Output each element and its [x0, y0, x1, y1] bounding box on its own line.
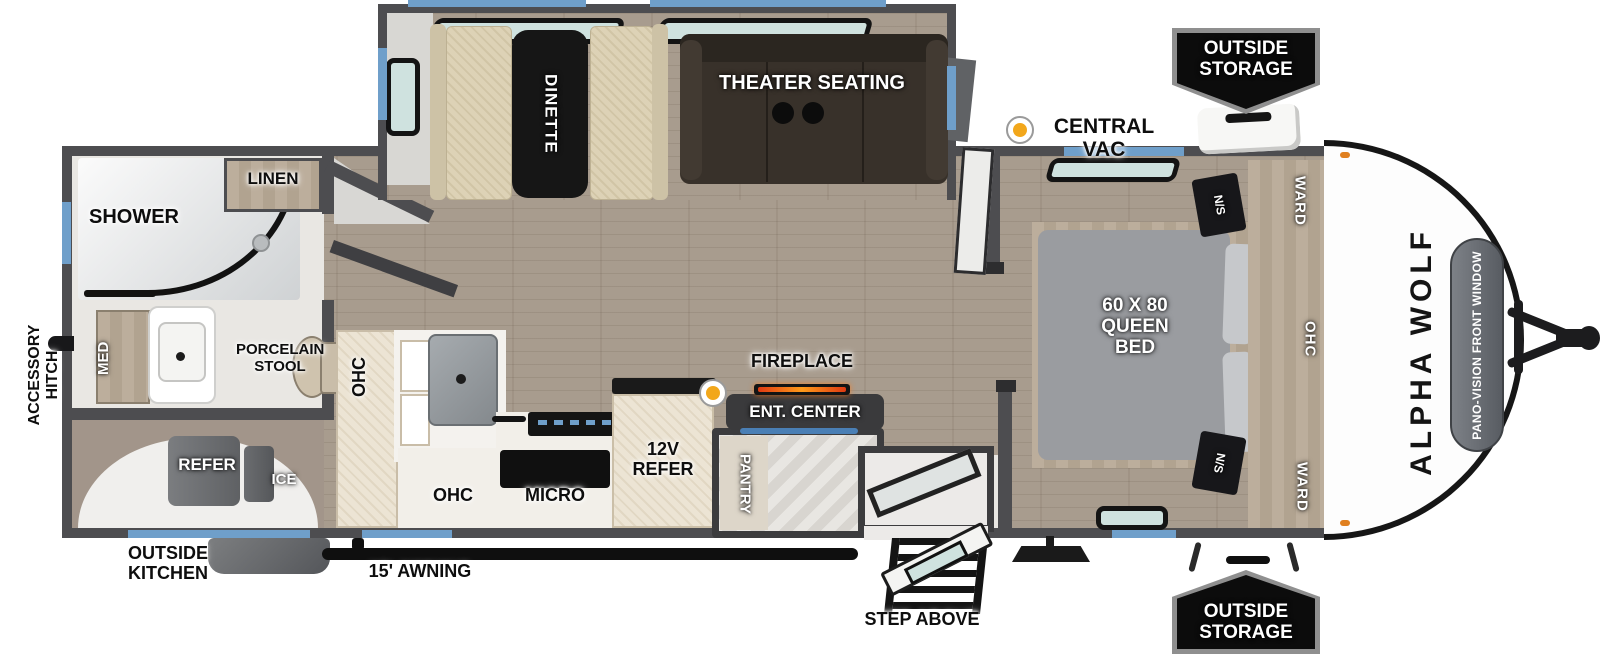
refer-label: REFER	[172, 456, 242, 475]
slideout-side-window	[386, 58, 420, 136]
microwave	[500, 450, 610, 488]
accent-bottom-3	[1112, 530, 1176, 538]
ohc-kitchen-label: OHC	[418, 486, 488, 506]
bath-faucet	[176, 352, 185, 361]
refer-12v-label: 12V REFER	[618, 440, 708, 480]
hitch-cross-bar	[1514, 300, 1523, 374]
dinette-backrest-left	[430, 24, 446, 200]
outside-kitchen-label: OUTSIDE KITCHEN	[118, 544, 218, 584]
accessory-hitch-label: ACCESSORY HITCH	[26, 312, 72, 438]
theater-armrest-right	[926, 40, 948, 180]
accent-left-wall	[62, 202, 71, 264]
theater-seating-back	[680, 34, 948, 62]
awning-bar	[322, 548, 858, 560]
kitchen-sink-drain	[456, 374, 466, 384]
storage-door-rear-handle	[1226, 556, 1270, 564]
ohc-bedroom-label: OHC	[1296, 310, 1322, 368]
accent-slideout-wall-left	[378, 48, 387, 120]
dinette-backrest-right	[652, 24, 668, 200]
ent-center-label: ENT. CENTER	[749, 403, 860, 422]
bathroom-dividing-wall	[62, 408, 334, 420]
pano-vision-front-window: PANO-VISION FRONT WINDOW	[1450, 238, 1504, 452]
outside-kitchen-door	[208, 538, 330, 574]
bedroom-window	[1045, 158, 1182, 182]
accent-bottom-1	[128, 530, 310, 538]
theater-armrest-left	[680, 40, 702, 180]
pantry-label: PANTRY	[722, 438, 766, 530]
pano-vision-label: PANO-VISION FRONT WINDOW	[1470, 251, 1484, 440]
nightstand-top: N/S	[1191, 172, 1246, 237]
ward-bottom-label: WARD	[1288, 456, 1314, 518]
stove-knob-3	[570, 420, 579, 425]
storage-door-front-handle	[1225, 112, 1271, 123]
outside-storage-rear-label: OUTSIDE STORAGE	[1172, 602, 1320, 644]
med-label: MED	[92, 328, 116, 388]
dinette-label: DINETTE	[541, 74, 560, 154]
shower-label: SHOWER	[84, 206, 184, 228]
storage-door-rear-mark-left	[1188, 542, 1202, 573]
nightstand-bottom-label: N/S	[1211, 452, 1227, 474]
kitchen-faucet	[492, 416, 526, 422]
stove-knob-5	[602, 420, 611, 425]
queen-bed-label: 60 X 80 QUEEN BED	[1062, 296, 1208, 359]
stove-knob-4	[586, 420, 595, 425]
marker-light-bottom	[1340, 520, 1350, 526]
kitchen-cabinet-door-2	[400, 394, 430, 446]
doorway-threshold-top	[984, 262, 1004, 274]
ice-label: ICE	[262, 472, 306, 489]
dinette-bench-left	[446, 26, 512, 200]
cupholder-icon-2	[802, 102, 824, 124]
porcelain-stool-label: PORCELAIN STOOL	[236, 342, 324, 375]
nightstand-top-label: N/S	[1211, 194, 1227, 216]
shower-drain	[252, 234, 270, 252]
stove-knob-2	[554, 420, 563, 425]
floorplan-canvas: ENT. CENTER N/S N/S DINETTE	[0, 0, 1600, 661]
brand-name-text: ALPHA WOLF	[1405, 227, 1439, 476]
ent-center: ENT. CENTER	[726, 394, 884, 430]
central-vac-port-dot	[699, 379, 727, 407]
doorway-threshold-bottom	[996, 380, 1016, 392]
dinette-bench-right	[590, 26, 654, 200]
ent-center-accent	[740, 428, 858, 434]
accent-slideout-top-right	[650, 0, 886, 7]
storage-door-rear-mark-right	[1286, 542, 1300, 573]
stove-knob-1	[538, 420, 547, 425]
central-vac-label: CENTRAL VAC	[1036, 115, 1172, 161]
linen-label: LINEN	[226, 170, 320, 189]
window-shade-pin	[1046, 536, 1054, 546]
ward-top-label: WARD	[1286, 170, 1312, 232]
accent-slideout-wall-right	[947, 66, 956, 130]
step-above-label: STEP ABOVE	[856, 610, 988, 630]
shower-curb	[84, 290, 156, 297]
micro-label: MICRO	[505, 486, 605, 506]
dinette-table: DINETTE	[512, 30, 588, 198]
marker-light-top	[1340, 152, 1350, 158]
cupholder-icon-1	[772, 102, 794, 124]
outside-storage-badge-rear: OUTSIDE STORAGE	[1172, 570, 1320, 654]
outside-storage-badge-front: OUTSIDE STORAGE	[1172, 28, 1320, 114]
awning-label: 15' AWNING	[362, 562, 478, 582]
bedroom-skylight	[1096, 506, 1168, 530]
fireplace-flame	[758, 387, 846, 392]
bedroom-partition-bottom	[998, 392, 1012, 532]
kitchen-cabinet-door-1	[400, 340, 430, 392]
brand-name: ALPHA WOLF	[1398, 206, 1446, 496]
theater-seating-label: THEATER SEATING	[682, 72, 942, 94]
central-vac-dot	[1006, 116, 1034, 144]
outside-storage-front-label: OUTSIDE STORAGE	[1172, 39, 1320, 81]
fireplace-label: FIREPLACE	[740, 352, 864, 372]
accent-bottom-2	[362, 530, 452, 538]
hitch-jack-knob	[1578, 326, 1600, 350]
ohc-kitchen-side-label: OHC	[350, 342, 380, 412]
accent-slideout-top-left	[408, 0, 586, 7]
window-shade-exterior	[1012, 546, 1090, 562]
